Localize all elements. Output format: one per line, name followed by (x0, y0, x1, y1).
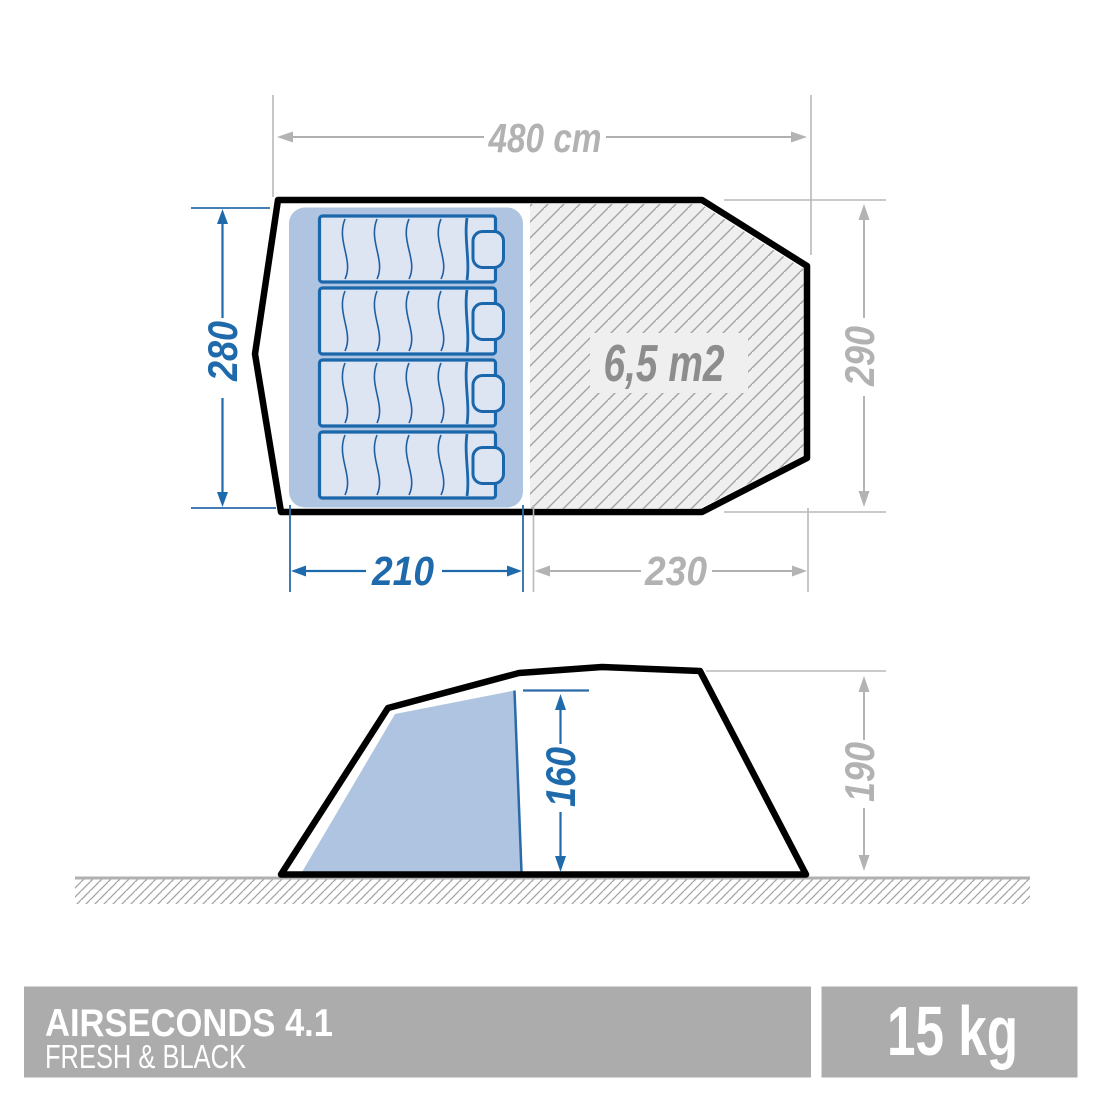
svg-text:290: 290 (836, 326, 883, 387)
svg-text:15 kg: 15 kg (887, 992, 1018, 1070)
svg-text:160: 160 (537, 747, 584, 807)
svg-text:480 cm: 480 cm (488, 115, 602, 161)
svg-text:6,5 m2: 6,5 m2 (604, 335, 725, 393)
svg-text:FRESH & BLACK: FRESH & BLACK (45, 1038, 246, 1075)
svg-text:230: 230 (644, 548, 707, 594)
svg-text:280: 280 (199, 321, 246, 382)
svg-text:190: 190 (836, 742, 883, 802)
svg-text:210: 210 (371, 548, 434, 594)
